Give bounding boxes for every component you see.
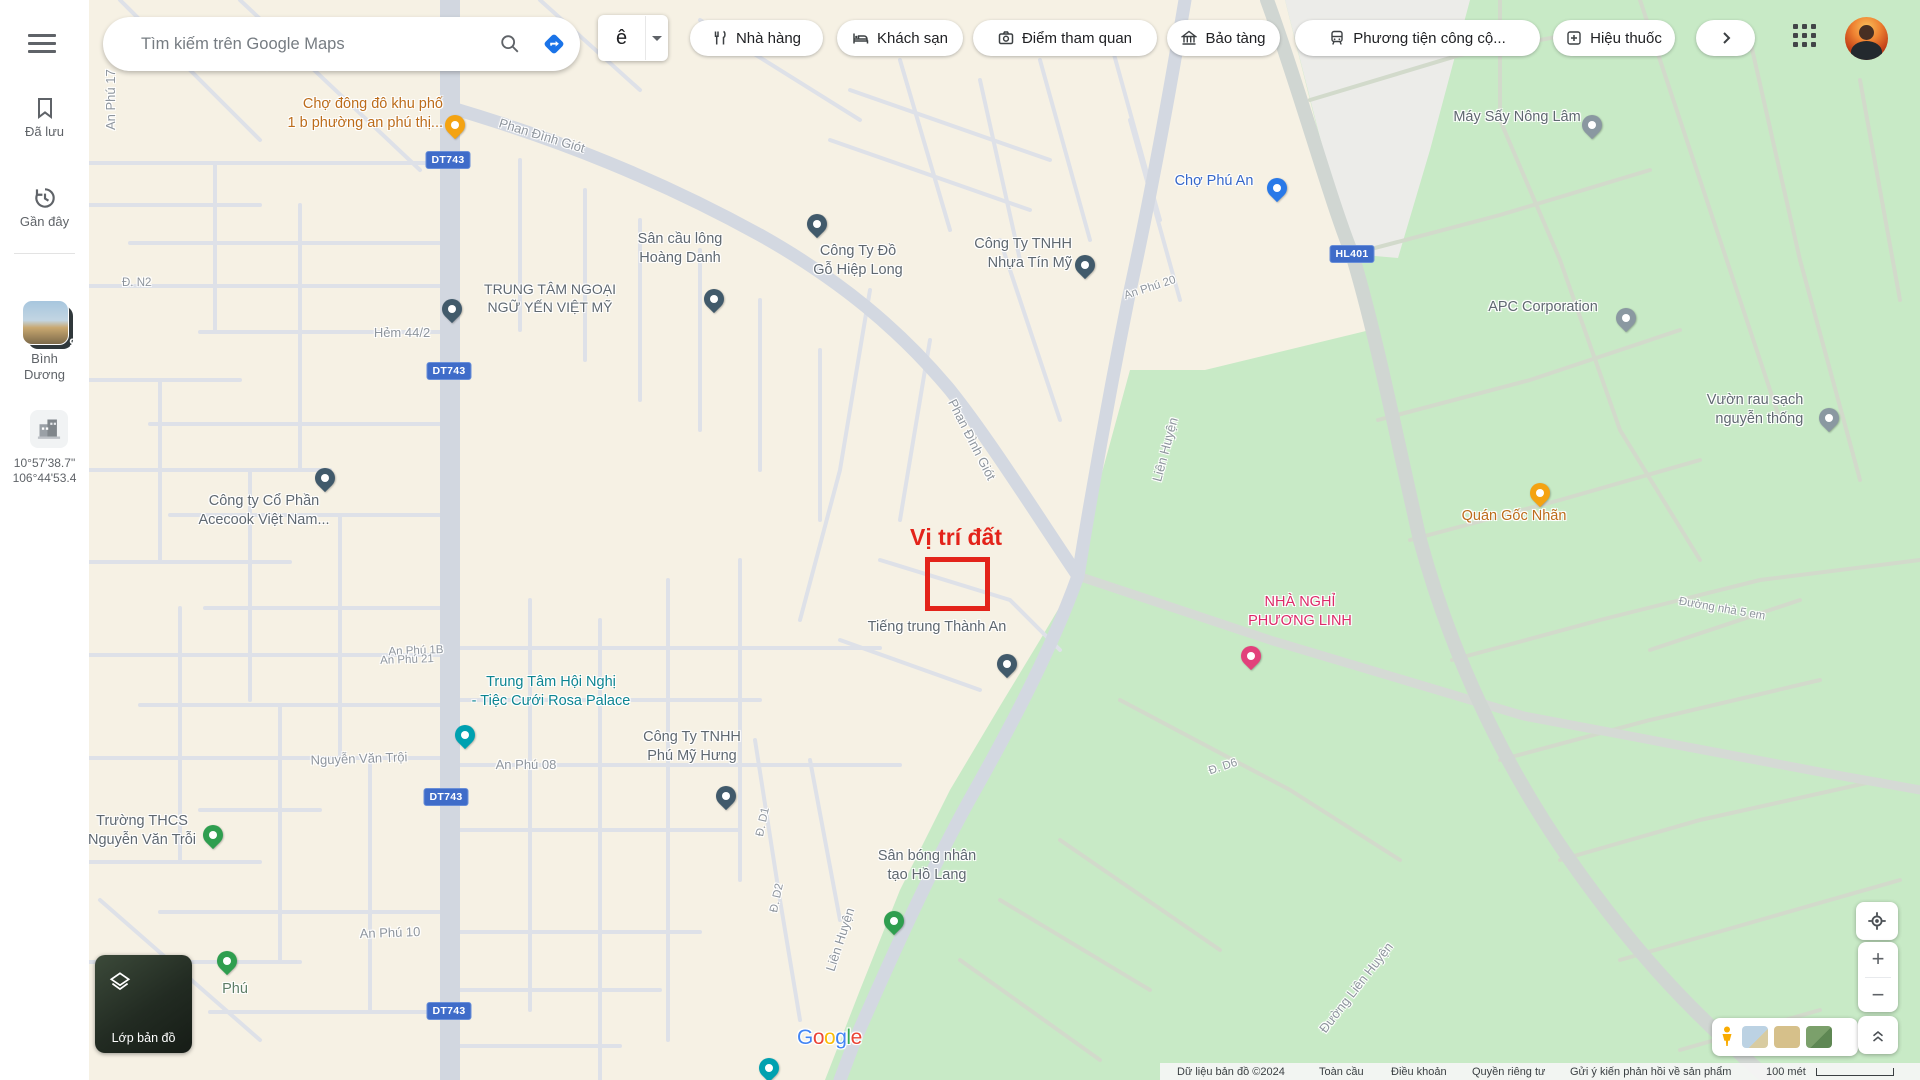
search-bar (103, 17, 580, 71)
poi-nhua-tin-my[interactable]: Công Ty TNHHNhựa Tín Mỹ (974, 235, 1072, 272)
collapse-imagery-button[interactable] (1858, 1016, 1898, 1054)
google-apps-button[interactable] (1793, 24, 1817, 48)
map-type-thumbnail[interactable] (1742, 1026, 1768, 1048)
divider (14, 253, 75, 254)
route-shield-dt743: DT743 (426, 362, 471, 380)
sidebar: Đã lưu Gần đây 9 BìnhDương 10°57'38.7"10… (0, 0, 89, 1080)
sidebar-item-saved[interactable]: Đã lưu (0, 95, 89, 139)
poi-rosa-palace[interactable]: Trung Tâm Hội Nghị- Tiệc Cưới Rosa Palac… (472, 673, 631, 710)
street-label: An Phú 10 (359, 924, 420, 941)
chip-label: Bảo tàng (1205, 30, 1265, 47)
map-attribution: Dữ liệu bản đồ ©2024 (1177, 1066, 1285, 1078)
sidebar-item-binh-duong[interactable]: 9 (22, 300, 74, 350)
street-label: Hẻm 44/2 (374, 325, 430, 340)
poi-apc-corporation[interactable]: APC Corporation (1488, 298, 1598, 317)
museum-icon (1181, 30, 1197, 46)
poi-hiep-long[interactable]: Công Ty ĐồGỗ Hiệp Long (813, 242, 902, 279)
zoom-in-button[interactable]: + (1858, 942, 1898, 977)
sidebar-item-recent[interactable]: Gần đây (0, 185, 89, 229)
route-shield-dt743: DT743 (423, 788, 468, 806)
poi-may-say-nong-lam[interactable]: Máy Sấy Nông Lâm (1453, 108, 1580, 127)
chip-label: Phương tiện công cộ... (1353, 30, 1505, 47)
bookmark-icon (33, 95, 57, 121)
chip-label: Hiệu thuốc (1590, 30, 1662, 47)
chip-museums[interactable]: Bảo tàng (1167, 20, 1280, 56)
my-location-icon (1866, 910, 1888, 932)
sidebar-item-coordinates[interactable] (30, 410, 68, 448)
street-label: An Phú 21 (380, 653, 434, 667)
restaurant-icon (712, 30, 728, 46)
chip-restaurants[interactable]: Nhà hàng (690, 20, 823, 56)
chip-hotels[interactable]: Khách sạn (837, 20, 963, 56)
chevron-right-icon (1718, 30, 1734, 46)
camera-icon (998, 30, 1014, 46)
poi-cho-dong-do[interactable]: Chợ đông đô khu phố1 b phường an phú thị… (288, 95, 443, 132)
pharmacy-icon (1566, 30, 1582, 46)
layers-label: Lớp bản đồ (95, 1031, 192, 1045)
menu-button[interactable] (28, 34, 56, 54)
poi-quan-goc-nhan[interactable]: Quán Gốc Nhãn (1462, 507, 1567, 526)
poi-tieng-trung-thanh-an[interactable]: Tiếng trung Thành An (868, 618, 1007, 637)
transit-icon (1329, 30, 1345, 46)
chip-pharmacies[interactable]: Hiệu thuốc (1553, 20, 1675, 56)
annotation-title: Vị trí đất (910, 524, 1002, 551)
poi-vuon-rau-sach[interactable]: Vườn rau sạchnguyễn thống (1707, 391, 1804, 428)
scale-bar (1816, 1068, 1894, 1076)
poi-phu-partial[interactable]: Phú (222, 980, 248, 999)
search-button[interactable] (488, 22, 532, 66)
poi-nha-nghi-phuong-linh[interactable]: NHÀ NGHỈPHƯƠNG LINH (1248, 593, 1352, 630)
hotel-icon (852, 30, 869, 46)
binh-duong-thumbnail (22, 300, 69, 345)
chip-label: Khách sạn (877, 30, 948, 47)
map-layers-widget[interactable]: Lớp bản đồ (95, 955, 192, 1053)
footer-link-terms[interactable]: Điều khoản (1391, 1066, 1447, 1078)
poi-cho-phu-an[interactable]: Chợ Phú An (1175, 172, 1254, 191)
street-label: An Phú 17 (103, 69, 118, 130)
google-maps-app: An Phú 17 ersi Đ. N2 Hẻm 44/2 Phan Đình … (0, 0, 1920, 1080)
route-shield-hl401: HL401 (1329, 245, 1374, 263)
chip-public-transport[interactable]: Phương tiện công cộ... (1295, 20, 1540, 56)
history-icon (32, 185, 58, 211)
sidebar-item-label: Đã lưu (0, 124, 89, 139)
footer-link-global[interactable]: Toàn cầu (1319, 1066, 1364, 1078)
map-type-thumbnail[interactable] (1806, 1026, 1832, 1048)
chevron-down-icon (646, 31, 668, 46)
route-shield-dt743: DT743 (426, 1002, 471, 1020)
route-shield-dt743: DT743 (425, 151, 470, 169)
input-method-selector[interactable]: ê (598, 15, 668, 61)
building-icon (30, 410, 68, 448)
chip-attractions[interactable]: Điểm tham quan (973, 20, 1157, 56)
imagery-control (1712, 1018, 1858, 1056)
google-watermark: Google (797, 1026, 862, 1050)
street-label: Đ. N2 (122, 277, 151, 289)
layers-icon (107, 969, 133, 995)
street-label: An Phú 08 (496, 757, 557, 772)
account-avatar[interactable] (1845, 17, 1888, 60)
zoom-out-button[interactable]: − (1858, 978, 1898, 1013)
chip-label: Điểm tham quan (1022, 30, 1132, 47)
poi-acecook[interactable]: Công ty Cổ PhầnAcecook Việt Nam... (198, 492, 329, 529)
sidebar-item-label: Gần đây (0, 214, 89, 229)
map-type-thumbnail[interactable] (1774, 1026, 1800, 1048)
footer-link-privacy[interactable]: Quyền riêng tư (1472, 1066, 1545, 1078)
poi-san-cau-long[interactable]: Sân cầu lôngHoàng Danh (638, 230, 723, 267)
scale-label: 100 mét (1766, 1066, 1806, 1078)
annotation-rectangle (925, 557, 990, 611)
pegman-icon[interactable] (1718, 1024, 1736, 1050)
directions-icon (541, 31, 567, 57)
footer-link-feedback[interactable]: Gửi ý kiến phản hồi về sản phẩm (1570, 1066, 1731, 1078)
chip-label: Nhà hàng (736, 30, 801, 47)
poi-truong-thcs[interactable]: Trường THCSNguyễn Văn Trỗi (88, 812, 196, 849)
avatar-figure (1859, 25, 1874, 40)
search-icon (499, 33, 521, 55)
poi-phu-my-hung[interactable]: Công Ty TNHHPhú Mỹ Hưng (643, 728, 741, 765)
double-chevron-up-icon (1869, 1026, 1887, 1044)
ime-label: ê (598, 16, 646, 60)
zoom-control: + − (1858, 942, 1898, 1012)
my-location-button[interactable] (1856, 902, 1898, 940)
directions-button[interactable] (532, 22, 576, 66)
coordinates-label: 10°57'38.7"106°44'53.4 (0, 456, 89, 486)
sidebar-item-binh-duong-label: BìnhDương (0, 351, 89, 382)
chips-scroll-right-button[interactable] (1696, 20, 1755, 56)
thumbnail-badge: 9 (69, 336, 76, 350)
search-input[interactable] (139, 34, 488, 55)
poi-trung-tam-ngoai-ngu[interactable]: TRUNG TÂM NGOẠINGỮ YẾN VIỆT MỸ (484, 281, 616, 317)
poi-san-bong-ho-lang[interactable]: Sân bóng nhântạo Hồ Lang (878, 847, 976, 884)
